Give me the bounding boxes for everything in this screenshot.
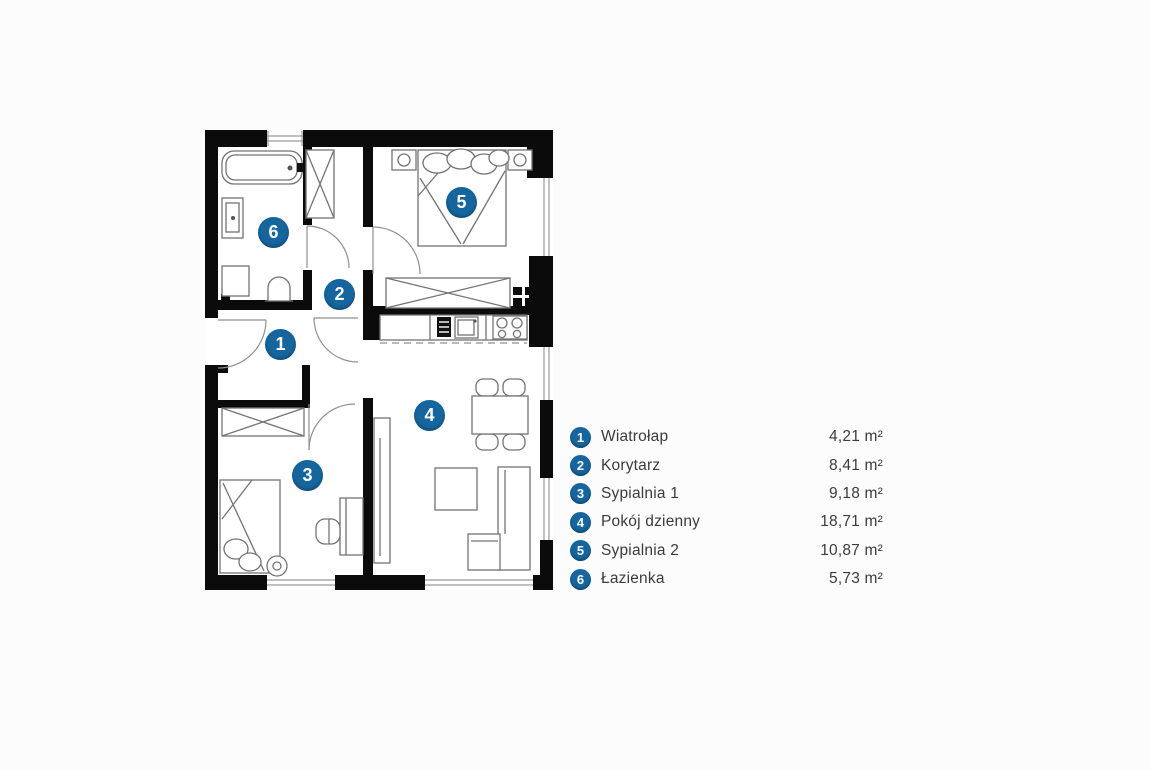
oven-icon [437,317,451,337]
legend-room-label: Pokój dzienny [601,513,700,531]
legend-row-korytarz: 2 Korytarz 8,41 m² [570,451,883,479]
legend-badge-4: 4 [570,512,591,533]
bathroom-cabinet-icon [222,266,249,296]
room-marker-2: 2 [324,279,355,310]
legend-room-area: 8,41 m² [829,457,883,475]
room-legend: 1 Wiatrołap 4,21 m² 2 Korytarz 8,41 m² 3… [570,423,883,593]
legend-row-wiatrolap: 1 Wiatrołap 4,21 m² [570,423,883,451]
window-right-bedroom2 [540,178,553,256]
sink-icon [222,198,243,238]
legend-room-label: Sypialnia 1 [601,485,679,503]
bedroom1-wardrobe-icon [222,408,304,436]
legend-room-area: 5,73 m² [829,570,883,588]
legend-row-sypialnia1: 3 Sypialnia 1 9,18 m² [570,480,883,508]
room-marker-3: 3 [292,460,323,491]
nightstand-icon [508,150,532,170]
window-right-kitchen [540,347,553,400]
stove-icon [493,316,527,339]
legend-row-lazienka: 6 Łazienka 5,73 m² [570,565,883,593]
bathtub-icon [222,151,304,184]
floorplan-drawing [0,0,1150,770]
legend-room-label: Wiatrołap [601,428,668,446]
legend-badge-1: 1 [570,427,591,448]
room-marker-1: 1 [265,329,296,360]
coffee-table-icon [435,468,477,510]
room-marker-5: 5 [446,187,477,218]
legend-room-area: 9,18 m² [829,485,883,503]
sideboard-icon [374,418,390,563]
nightstand-icon [392,150,416,170]
legend-room-label: Łazienka [601,570,665,588]
legend-room-area: 10,87 m² [820,542,883,560]
legend-badge-2: 2 [570,455,591,476]
kitchen-sink-icon [455,317,478,338]
bedroom2-wardrobe-icon [386,278,510,308]
floorplan-canvas: 1 2 3 4 5 6 1 Wiatrołap 4,21 m² 2 Koryta… [0,0,1150,770]
legend-room-label: Korytarz [601,457,660,475]
window-bottom-bedroom1 [267,576,335,590]
hall-wardrobe-icon [306,150,334,218]
legend-badge-6: 6 [570,569,591,590]
stool-icon [267,556,287,576]
room-marker-4: 4 [414,400,445,431]
legend-room-area: 4,21 m² [829,428,883,446]
legend-badge-5: 5 [570,540,591,561]
room-marker-6: 6 [258,217,289,248]
window-top-bathroom [267,131,303,146]
window-bottom-living [425,576,533,590]
window-right-living [540,478,553,540]
legend-badge-3: 3 [570,483,591,504]
legend-room-label: Sypialnia 2 [601,542,679,560]
legend-room-area: 18,71 m² [820,513,883,531]
legend-row-pokoj-dzienny: 4 Pokój dzienny 18,71 m² [570,508,883,536]
legend-row-sypialnia2: 5 Sypialnia 2 10,87 m² [570,537,883,565]
